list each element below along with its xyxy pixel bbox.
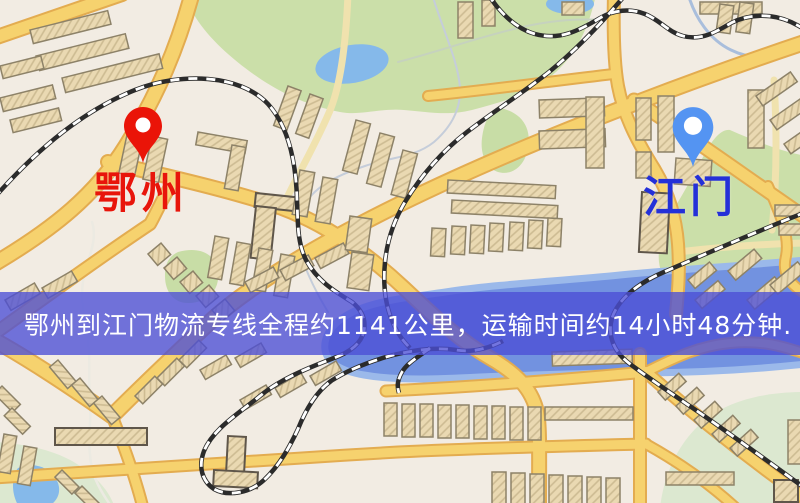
route-banner: 鄂州到江门物流专线全程约1141公里，运输时间约14小时48分钟. xyxy=(0,292,800,355)
origin-label: 鄂州 xyxy=(66,172,216,217)
map: 鄂州 江门 鄂州到江门物流专线全程约1141公里，运输时间约14小时48分钟. xyxy=(0,0,800,503)
destination-pin-icon xyxy=(671,106,715,168)
route-banner-text: 鄂州到江门物流专线全程约1141公里，运输时间约14小时48分钟. xyxy=(0,306,792,342)
map-artwork xyxy=(0,0,800,503)
destination-label: 江门 xyxy=(615,176,765,221)
origin-pin-icon xyxy=(123,102,163,168)
